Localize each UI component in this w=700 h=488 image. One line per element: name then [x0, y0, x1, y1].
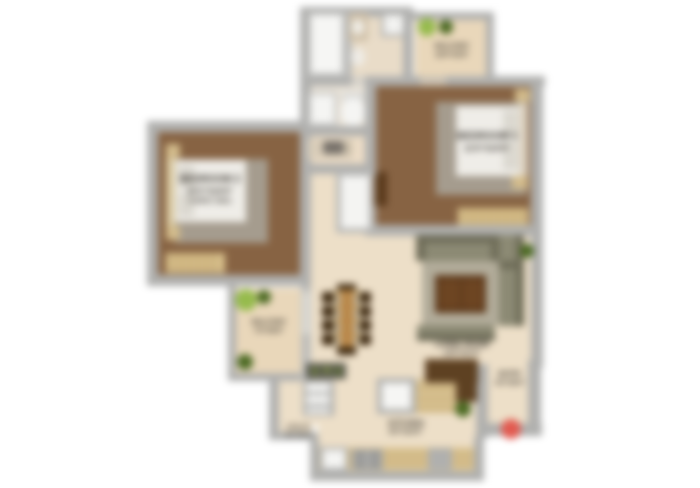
svg-text:BEDROOM 1: BEDROOM 1 — [457, 131, 518, 142]
svg-text:BALCONY: BALCONY — [252, 319, 287, 326]
svg-text:8'0"X10'0": 8'0"X10'0" — [389, 429, 423, 436]
svg-text:ENTRY: ENTRY — [498, 371, 522, 378]
svg-text:UTILITY: UTILITY — [287, 424, 312, 431]
svg-text:CARPET AREA: CARPET AREA — [188, 199, 232, 205]
svg-text:4'0"X6'0": 4'0"X6'0" — [495, 380, 525, 387]
svg-text:11'6"X10'0": 11'6"X10'0" — [464, 143, 510, 153]
svg-text:BEDROOM 2: BEDROOM 2 — [180, 174, 241, 185]
svg-text:LIVING ROOM: LIVING ROOM — [435, 340, 489, 349]
svg-text:10'0"X3'6": 10'0"X3'6" — [435, 52, 469, 59]
svg-text:7'0"X9'0": 7'0"X9'0" — [254, 328, 284, 335]
svg-text:10'2"X10'0": 10'2"X10'0" — [187, 186, 233, 196]
svg-text:3'0"X4'0": 3'0"X4'0" — [285, 432, 313, 439]
svg-text:13'6"X11'0": 13'6"X11'0" — [443, 350, 481, 357]
svg-text:KITCHEN: KITCHEN — [388, 419, 424, 428]
svg-text:BALCONY: BALCONY — [435, 43, 470, 50]
